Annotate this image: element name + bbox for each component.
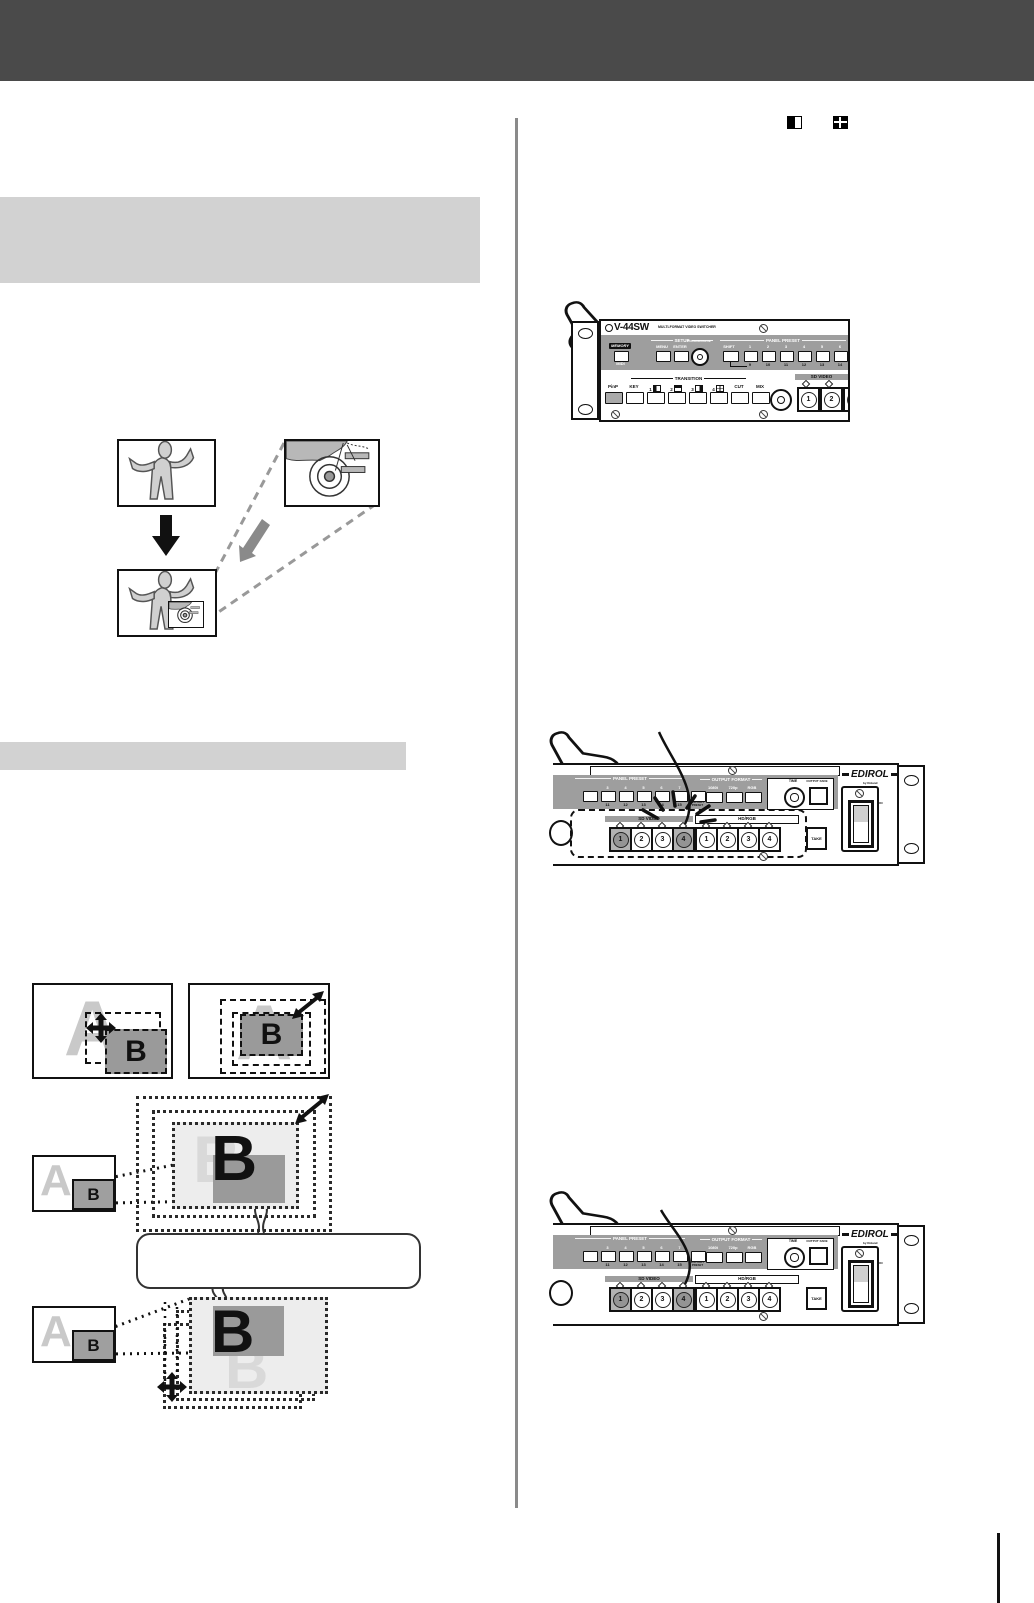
sd-input-2-button: 2 xyxy=(820,387,843,412)
panel-illustration-select-channel: PANEL PRESET 311 412 513 614 715 FACTORY… xyxy=(545,730,945,920)
screw-icon xyxy=(759,324,768,333)
preset-num: 3 xyxy=(780,345,792,349)
cursor-value-knob xyxy=(691,348,709,366)
inset-letter-large: B xyxy=(211,1126,257,1190)
panel-illustration-pinp: V-44SW MULTI-FORMAT VIDEO SWITCHER MEMOR… xyxy=(560,300,860,480)
rack-ear xyxy=(571,321,599,420)
preset-button xyxy=(816,351,830,362)
menu-label: MENU xyxy=(654,345,670,349)
leader-and-blink-marks xyxy=(545,730,945,920)
sd-video-strip: SD VIDEO xyxy=(795,374,848,380)
shift-label: SHIFT xyxy=(720,345,738,349)
section-heading-box xyxy=(0,197,480,283)
pinp-concept-diagram xyxy=(100,430,400,645)
pattern-icon xyxy=(716,385,724,392)
memory-label: MEMORY xyxy=(609,343,631,349)
transition-3-button xyxy=(689,392,707,404)
footer-rule xyxy=(997,1533,1000,1603)
transition-2-button xyxy=(668,392,686,404)
preset-button xyxy=(834,351,848,362)
monitor-view: A B xyxy=(32,1306,116,1363)
pattern-icon xyxy=(653,385,661,392)
enter-label: ENTER xyxy=(672,345,688,349)
preset-button xyxy=(780,351,794,362)
preset-num: 2 xyxy=(762,345,774,349)
pinp-move-diagram: B B A B xyxy=(25,1280,435,1470)
source-a-frame xyxy=(117,439,216,507)
map-figure xyxy=(169,602,201,624)
sd-input-1-button: 1 xyxy=(797,387,820,412)
rack-hole xyxy=(578,404,593,415)
preset-button xyxy=(798,351,812,362)
move-cross-icon xyxy=(83,1010,119,1046)
background-letter: A xyxy=(40,1310,72,1354)
panel-illustration-take: PANEL PRESET 311 412 513 614 715 FACTORY… xyxy=(545,1190,945,1380)
transition-label: TRANSITION xyxy=(675,376,703,381)
panel-face: V-44SW MULTI-FORMAT VIDEO SWITCHER MEMOR… xyxy=(599,319,850,422)
background-letter: A xyxy=(40,1159,72,1203)
screw-icon xyxy=(611,410,620,419)
preset-button xyxy=(744,351,758,362)
preset-subnum: 11 xyxy=(780,363,792,367)
insert-arrow-icon xyxy=(239,519,270,562)
pinp-inset-window xyxy=(168,601,204,628)
rack-hole xyxy=(578,328,593,339)
pinp-position-diagram: A B xyxy=(32,983,173,1079)
transition-1-button xyxy=(647,392,665,404)
pinp-inset-window: B xyxy=(72,1179,115,1210)
presenter-figure xyxy=(119,441,209,500)
inset-letter: B xyxy=(125,1035,147,1069)
enter-button xyxy=(674,351,689,362)
preset-subnum: 13 xyxy=(816,363,828,367)
transition-section: TRANSITION xyxy=(631,376,746,381)
pinp-inset-window: B xyxy=(72,1330,115,1361)
pinp-button xyxy=(605,392,623,404)
preset-num: 6 xyxy=(834,345,846,349)
panel-preset-section: PANEL PRESET xyxy=(720,338,846,343)
preset-num: 4 xyxy=(798,345,810,349)
inset-letter-large: B xyxy=(211,1302,254,1362)
down-arrow-icon xyxy=(152,515,180,556)
pattern-icon xyxy=(674,385,682,392)
resize-arrow-icon xyxy=(291,1092,331,1124)
preset-button xyxy=(762,351,776,362)
leader-line xyxy=(545,1190,945,1380)
column-divider xyxy=(515,118,518,1508)
sd-input-3-button: 3 xyxy=(843,387,850,412)
monitor-view: A B xyxy=(32,1155,116,1212)
cursor-value-label: CURSOR/VALUE xyxy=(687,340,709,343)
menu-button xyxy=(656,351,671,362)
preset-num: 1 xyxy=(744,345,756,349)
pinp-split-screen-icon xyxy=(787,116,802,129)
midi-label: MIDI xyxy=(614,362,627,366)
inset-letter: B xyxy=(261,1018,283,1052)
model-name: V-44SW xyxy=(614,323,649,333)
mix-button xyxy=(752,392,770,404)
panel-preset-label: PANEL PRESET xyxy=(766,338,800,343)
preset-subnum: 12 xyxy=(798,363,810,367)
preset-subnum: 9 xyxy=(744,363,756,367)
move-cross-icon xyxy=(154,1369,190,1405)
preset-num: 5 xyxy=(816,345,828,349)
preset-subnum: 10 xyxy=(762,363,774,367)
pinp-size-diagram: A B xyxy=(188,983,330,1079)
subsection-heading-bar xyxy=(0,742,406,770)
roland-logo-icon xyxy=(605,324,613,332)
composited-frame xyxy=(117,569,217,637)
key-button xyxy=(626,392,644,404)
pinp-window: B xyxy=(240,1014,303,1056)
preset-subnum: 14 xyxy=(834,363,846,367)
page-header-bar xyxy=(0,0,1034,81)
cut-button xyxy=(731,392,749,404)
inset-letter: B xyxy=(87,1336,99,1356)
inset-letter: B xyxy=(87,1185,99,1205)
pinp-button-label: PinP xyxy=(604,385,622,390)
screw-icon xyxy=(759,410,768,419)
map-figure xyxy=(286,441,373,500)
transition-time-knob xyxy=(770,389,792,411)
source-b-frame xyxy=(284,439,380,507)
pattern-icon xyxy=(695,385,703,392)
model-subtitle: MULTI-FORMAT VIDEO SWITCHER xyxy=(658,326,716,330)
resize-arrow-icon xyxy=(290,989,326,1019)
transition-4-button xyxy=(710,392,728,404)
cut-button-label: CUT xyxy=(730,385,748,390)
mix-button-label: MIX xyxy=(751,385,769,390)
manual-page: A B A B B xyxy=(0,0,1034,1603)
key-button-label: KEY xyxy=(625,385,643,390)
four-split-screen-icon xyxy=(833,116,848,129)
